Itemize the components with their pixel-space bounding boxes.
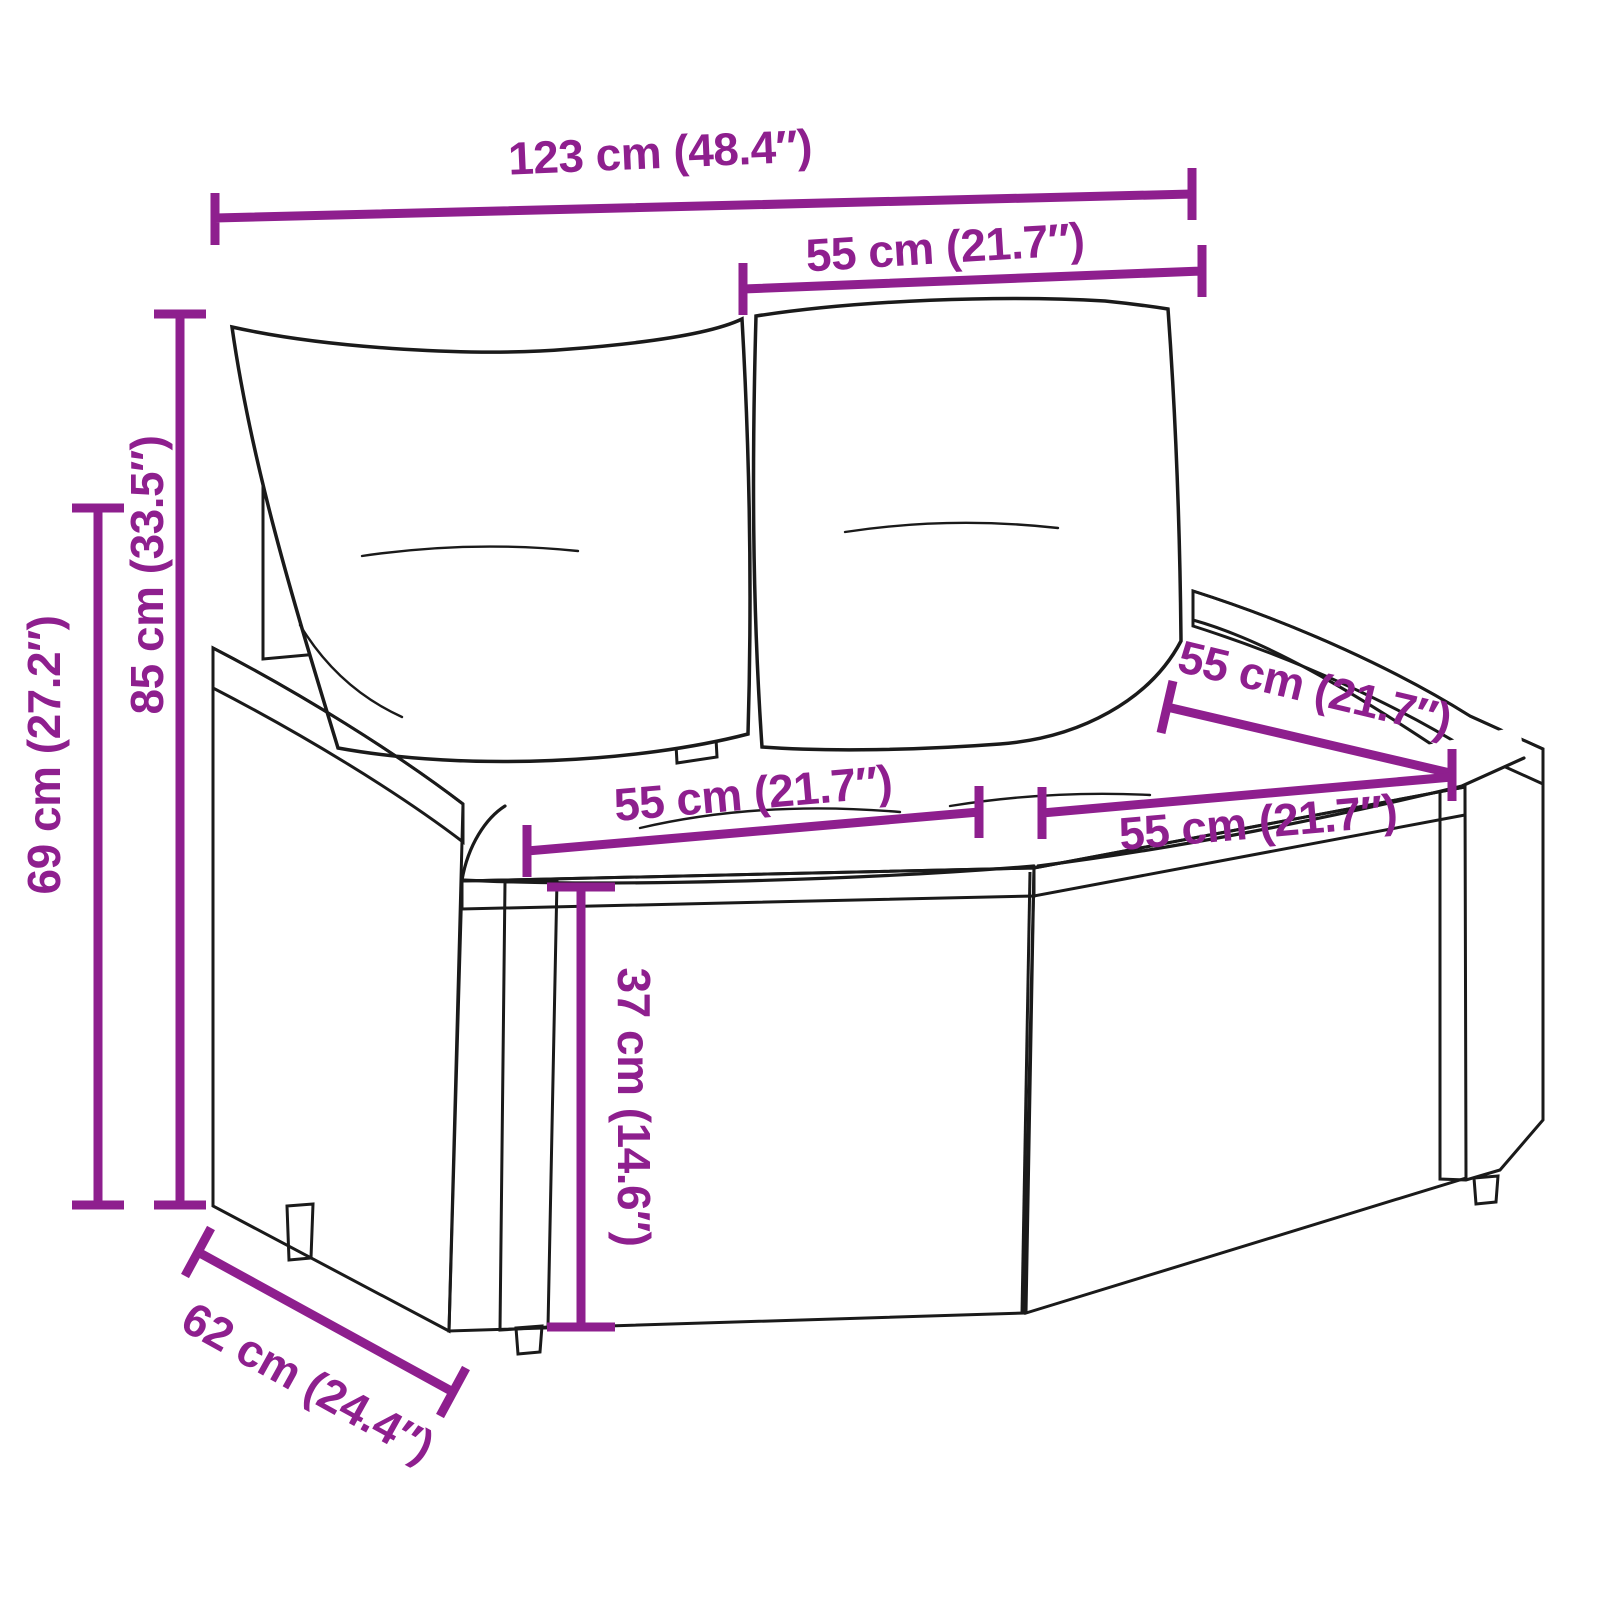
sofa-foot-right: [1474, 1176, 1498, 1204]
product-dimension-diagram: 123 cm (48.4″) 55 cm (21.7″) 85 cm (33.5…: [0, 0, 1600, 1600]
dim-overall-depth-label: 62 cm (24.4″): [173, 1292, 442, 1473]
dim-overall-width-label: 123 cm (48.4″): [507, 119, 813, 184]
dim-seat-height-line: [547, 887, 615, 1327]
diagram-canvas: 123 cm (48.4″) 55 cm (21.7″) 85 cm (33.5…: [0, 0, 1600, 1600]
back-cushion-left: [232, 319, 750, 762]
sofa-front-right: [1026, 787, 1466, 1313]
dim-backrest-width-label: 55 cm (21.7″): [804, 213, 1086, 282]
dim-seat-height-label: 37 cm (14.6″): [608, 968, 660, 1247]
dim-armrest-height-line: [72, 508, 124, 1205]
dim-seat-depth-label: 55 cm (21.7″): [1173, 630, 1456, 746]
seat-corner-post: [500, 880, 557, 1330]
dim-armrest-height-label: 69 cm (27.2″): [18, 616, 70, 895]
back-cushion-right: [754, 299, 1181, 750]
sofa-front-left: [449, 868, 1034, 1331]
dim-total-height-label: 85 cm (33.5″): [121, 436, 173, 715]
